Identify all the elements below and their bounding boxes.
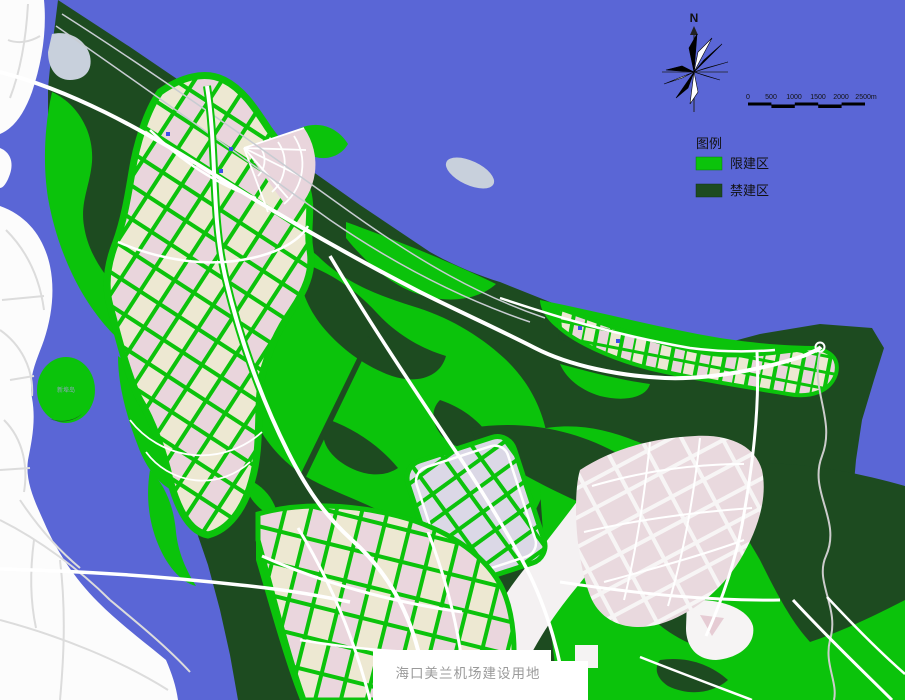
scale-tick-5: 2500m [855,94,877,101]
legend-title: 图例 [696,136,722,151]
legend-label-prohibited: 禁建区 [730,183,769,198]
scale-tick-0: 0 [746,94,750,101]
legend-swatch-prohibited [696,184,722,197]
river-island: 新埠岛 [37,357,95,423]
map-title: 海口美兰机场建设用地 [396,666,541,681]
scale-tick-4: 2000 [833,94,849,101]
legend-label-restricted: 限建区 [730,156,769,171]
legend-swatch-restricted [696,157,722,170]
north-label: N [690,11,699,25]
map-canvas: 新埠岛 N 0 500 1000 1500 2000 2500m [0,0,905,700]
scale-tick-2: 1000 [786,94,802,101]
planning-map-svg: 新埠岛 N 0 500 1000 1500 2000 2500m [0,0,905,700]
island-label: 新埠岛 [57,386,75,394]
scale-tick-1: 500 [765,94,777,101]
scale-tick-3: 1500 [810,94,826,101]
